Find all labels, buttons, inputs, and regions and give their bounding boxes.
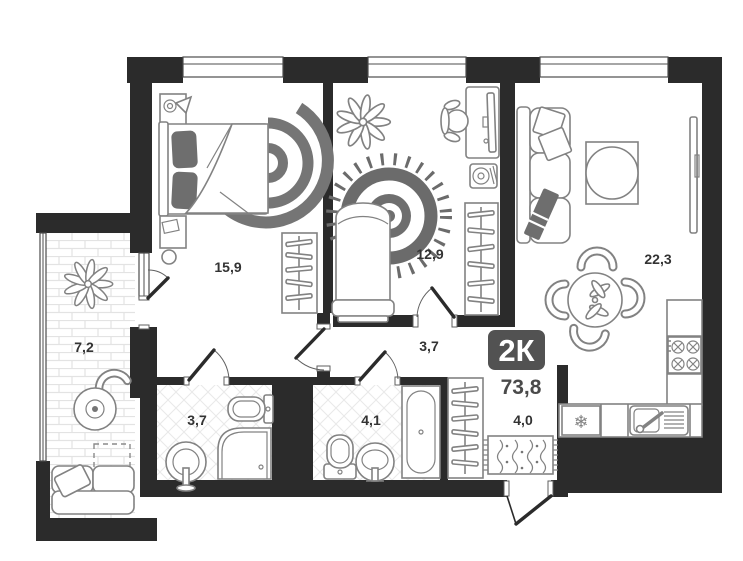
floor-plan: 7,2	[0, 0, 743, 561]
side-table-icon	[160, 216, 186, 264]
window-icon	[183, 57, 283, 77]
wardrobe-icon	[448, 378, 483, 478]
bathroom-door-icon	[355, 352, 400, 385]
room-living-kitchen: ❄ 22,3	[517, 107, 702, 437]
coffee-table-icon	[586, 142, 638, 204]
bedroom-door-icon	[296, 324, 330, 371]
plan-type-badge: 2К	[488, 330, 545, 370]
wardrobe-icon	[282, 233, 317, 313]
kitchen-sink-icon	[630, 406, 688, 435]
floor-plan-svg: 7,2	[0, 0, 743, 561]
round-table-icon	[74, 388, 116, 430]
sofa-icon	[517, 107, 572, 243]
entrance-door-icon	[504, 481, 553, 524]
balcony-window-icon	[139, 253, 149, 298]
sofa-icon	[52, 464, 134, 514]
room-bedroom2: 12,9	[332, 87, 499, 322]
tv-icon	[690, 117, 699, 233]
ensuite-door-icon	[184, 350, 229, 385]
dining-set-icon	[549, 251, 641, 350]
area-label-ensuite: 3,7	[187, 412, 207, 428]
speaker-icon	[470, 164, 497, 188]
room-bedroom: 15,9	[159, 94, 328, 313]
balcony-glazing-icon	[40, 233, 46, 461]
single-bed-icon	[332, 203, 394, 322]
bedroom2-door-icon	[413, 288, 457, 327]
wardrobe-icon	[465, 203, 498, 315]
shower-icon	[218, 428, 271, 479]
badge-label: 2К	[498, 333, 534, 368]
rug-icon	[483, 436, 558, 474]
desk-icon	[466, 87, 499, 158]
bathtub-icon	[402, 386, 440, 478]
window-icon	[368, 57, 466, 77]
area-label-entry: 4,0	[513, 412, 533, 428]
svg-text:❄: ❄	[573, 412, 588, 433]
plant-icon	[336, 94, 390, 149]
area-label-hallway: 3,7	[419, 338, 439, 354]
area-label-bedroom: 15,9	[214, 259, 241, 275]
toilet-icon	[324, 435, 356, 479]
toilet-icon	[228, 395, 273, 423]
area-label-balcony: 7,2	[74, 339, 94, 355]
total-area-label: 73,8	[501, 376, 542, 399]
desk-chair-icon	[441, 99, 468, 144]
area-label-bathroom: 4,1	[361, 412, 381, 428]
double-bed-icon	[159, 122, 268, 216]
room-hallway: 3,7	[419, 338, 439, 354]
stove-icon	[668, 337, 701, 373]
area-label-bedroom2: 12,9	[416, 246, 443, 262]
window-icon	[540, 57, 668, 77]
area-label-living: 22,3	[644, 251, 671, 267]
washbasin-icon	[356, 443, 394, 481]
fridge-icon: ❄	[562, 406, 600, 435]
